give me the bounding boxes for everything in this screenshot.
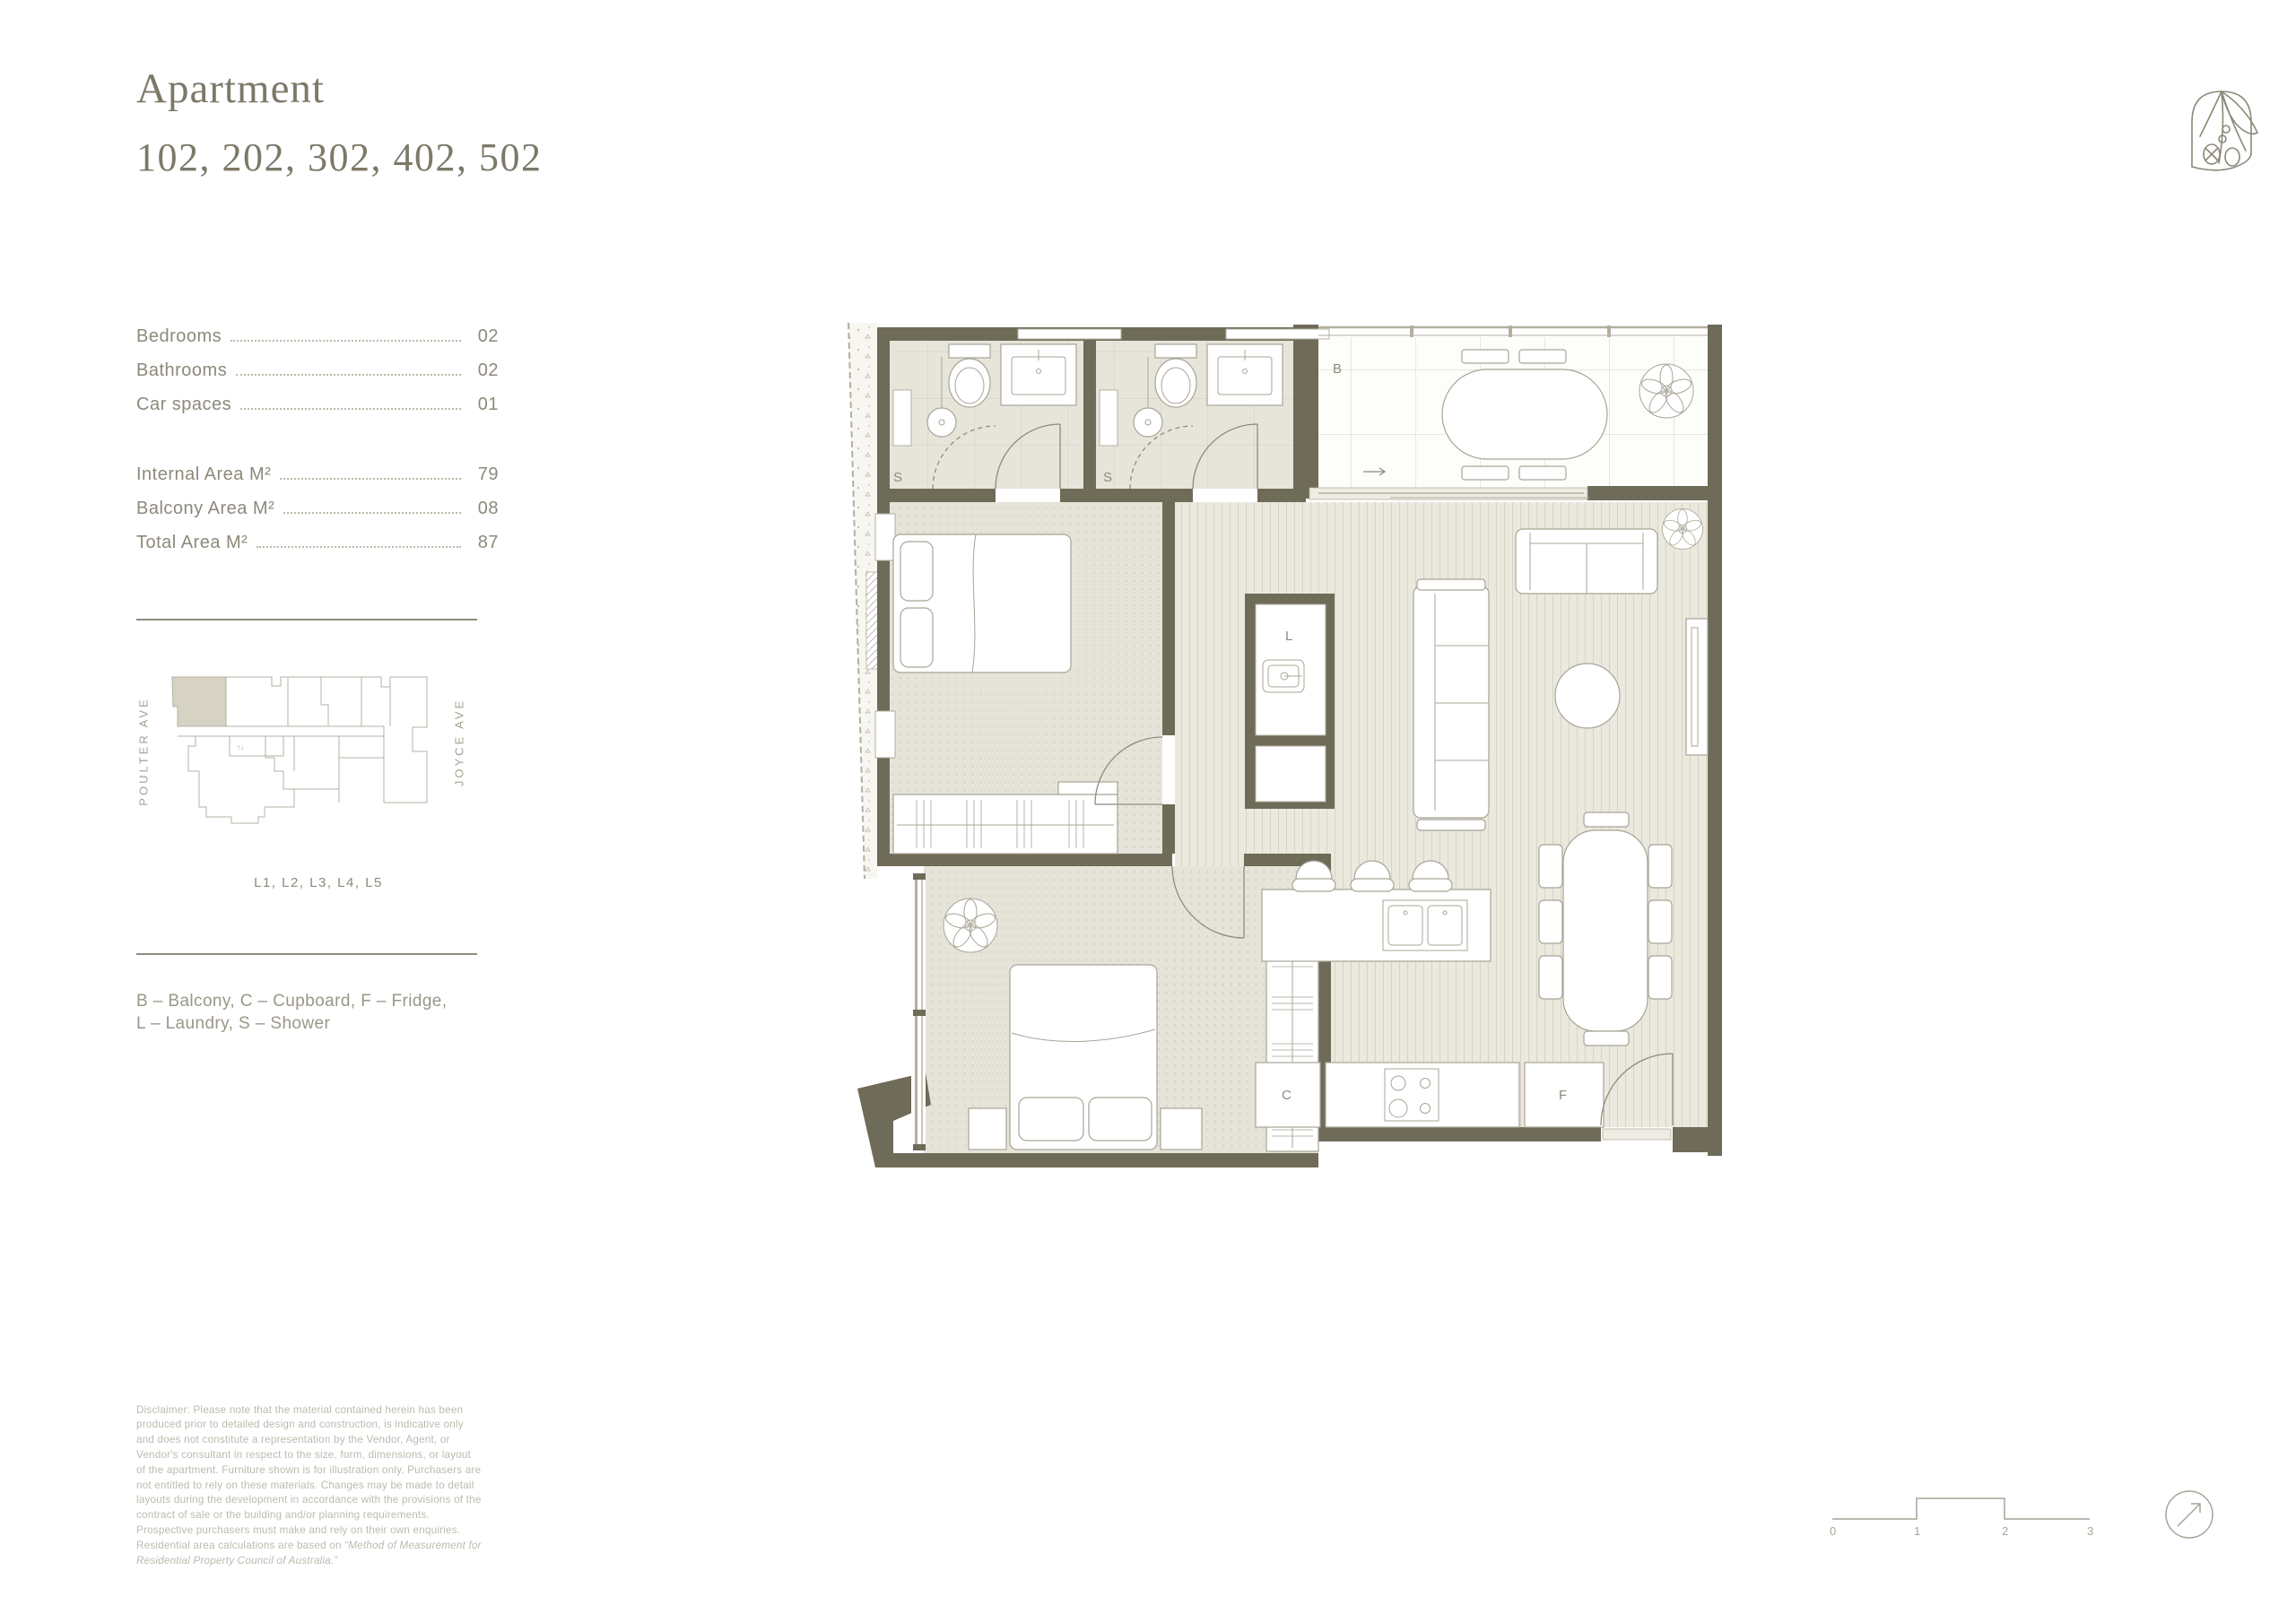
stat-value: 02 (466, 326, 499, 347)
stats-panel: Bedrooms 02 Bathrooms 02 Car spaces 01 I… (136, 326, 499, 567)
header: Apartment 102, 202, 302, 402, 502 (136, 65, 543, 180)
stat-row: Internal Area M² 79 (136, 464, 499, 499)
bedside-table (1161, 1108, 1202, 1150)
shower-label: S (1103, 470, 1113, 485)
scale-tick: 0 (1830, 1524, 1836, 1538)
highlighted-unit (172, 677, 226, 726)
leader-dots (257, 545, 461, 548)
leader-dots (230, 339, 461, 342)
dining-table (1563, 830, 1648, 1031)
balcony-sliding-door (1309, 488, 1589, 499)
stat-label: Bathrooms (136, 360, 227, 381)
stat-row: Balcony Area M² 08 (136, 499, 499, 533)
fridge-label: F (1559, 1088, 1568, 1103)
stat-value: 79 (466, 464, 499, 485)
stat-label: Internal Area M² (136, 464, 271, 485)
stat-row: Bathrooms 02 (136, 360, 499, 395)
divider (136, 619, 477, 621)
levels-caption: L1, L2, L3, L4, L5 (170, 875, 466, 890)
scale-bar: 0 1 2 3 (1819, 1481, 2106, 1541)
stat-row: Car spaces 01 (136, 395, 499, 429)
page-title: Apartment (136, 65, 543, 113)
disclaimer-text: Disclaimer: Please note that the materia… (136, 1404, 482, 1551)
stat-label: Car spaces (136, 395, 231, 415)
stat-label: Bedrooms (136, 326, 222, 347)
stat-label: Balcony Area M² (136, 499, 274, 519)
leader-dots (236, 373, 461, 376)
loveseat (1516, 529, 1657, 594)
cupboard-label: C (1282, 1088, 1292, 1103)
svg-text:↑↓: ↑↓ (237, 743, 244, 751)
stat-value: 87 (466, 533, 499, 553)
stat-row: Total Area M² 87 (136, 533, 499, 567)
laundry-label: L (1285, 629, 1293, 644)
laundry-closet: L (1256, 604, 1326, 802)
sofa (1413, 579, 1489, 830)
balcony-label: B (1333, 361, 1343, 377)
stat-value: 01 (466, 395, 499, 415)
leader-dots (240, 407, 461, 410)
bar-stools (1292, 861, 1452, 891)
balcony-glazing (1318, 325, 1708, 337)
stat-value: 08 (466, 499, 499, 519)
apartment-numbers: 102, 202, 302, 402, 502 (136, 135, 543, 180)
floor-plan: S S B (834, 305, 1767, 1175)
stat-label: Total Area M² (136, 533, 248, 553)
street-label-left: POULTER AVE (137, 697, 151, 805)
scale-tick: 2 (2002, 1524, 2008, 1538)
kitchen-bench (1326, 1063, 1519, 1127)
divider (136, 953, 477, 955)
bedside-table (969, 1108, 1006, 1150)
legend-line: L – Laundry, S – Shower (136, 1012, 447, 1035)
legend-line: B – Balcony, C – Cupboard, F – Fridge, (136, 990, 447, 1012)
scale-tick: 3 (2087, 1524, 2093, 1538)
street-label-right: JOYCE AVE (453, 699, 466, 786)
plan-legend: B – Balcony, C – Cupboard, F – Fridge, L… (136, 990, 447, 1035)
leader-dots (283, 511, 461, 514)
leader-dots (280, 477, 461, 480)
stat-value: 02 (466, 360, 499, 381)
tv-unit (1686, 619, 1708, 755)
stat-row: Bedrooms 02 (136, 326, 499, 360)
brochure-sheet: Apartment 102, 202, 302, 402, 502 Bedroo… (0, 0, 2296, 1623)
site-key-map: ↑↓ (169, 671, 438, 837)
scale-tick: 1 (1914, 1524, 1920, 1538)
brand-logo-icon (2179, 79, 2264, 172)
bedroom-2-window (911, 873, 926, 1150)
shower-label: S (893, 470, 903, 485)
disclaimer: Disclaimer: Please note that the materia… (136, 1403, 483, 1569)
north-arrow-icon (2160, 1485, 2219, 1544)
coffee-table (1555, 664, 1620, 728)
